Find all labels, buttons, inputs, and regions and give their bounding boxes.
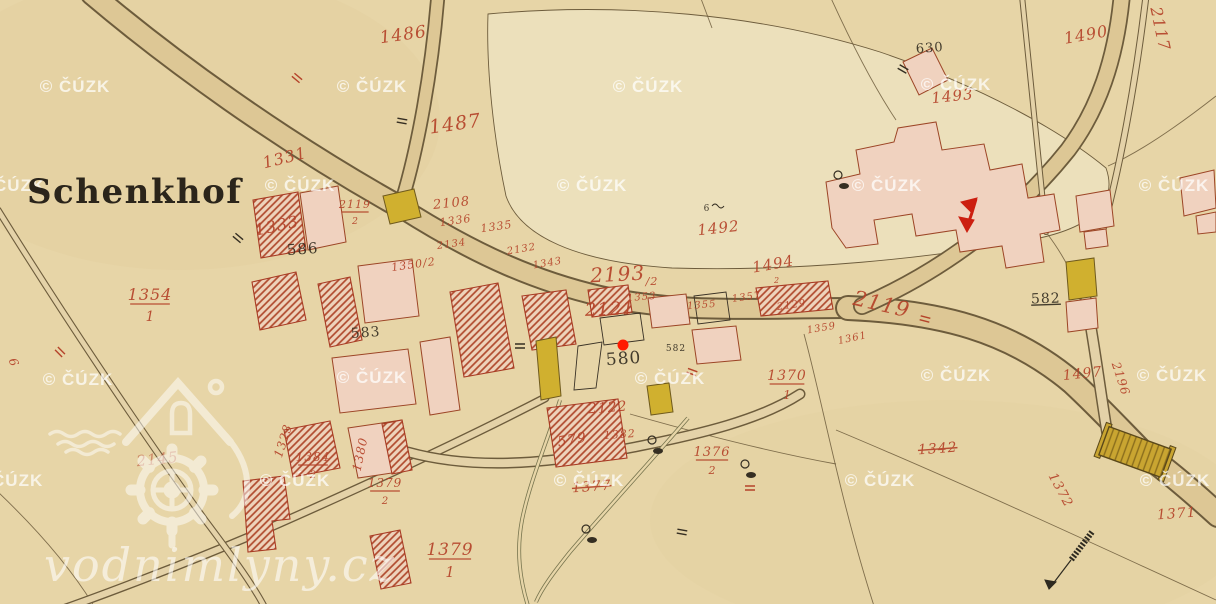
parcel-label-2121: 2121 (584, 298, 636, 321)
cuzk-watermark: © ČÚZK (1137, 366, 1207, 385)
cuzk-watermark: © ČÚZK (337, 77, 407, 96)
parcel-label-583: 583 (350, 324, 381, 342)
building (1084, 229, 1108, 249)
parcel-label-/2: /2 (645, 275, 659, 288)
parcel-label-582: 582 (1031, 290, 1061, 307)
svg-text:1379: 1379 (426, 540, 473, 560)
svg-text:2: 2 (707, 464, 715, 477)
svg-text:2119: 2119 (338, 198, 371, 211)
brand-watermark-text: vodnimlyny.cz (44, 538, 396, 592)
building (1076, 190, 1114, 232)
cuzk-watermark: © ČÚZK (43, 370, 113, 389)
svg-text:2: 2 (381, 496, 388, 507)
cuzk-watermark: © ČÚZK (845, 471, 915, 490)
svg-text:1379: 1379 (368, 476, 403, 490)
cuzk-watermark: © ČÚZK (40, 77, 110, 96)
svg-text:1: 1 (445, 565, 454, 581)
yellow-building (383, 189, 421, 224)
parcel-label-1371: 1371 (1156, 505, 1197, 524)
cuzk-watermark: © ČÚZK (921, 366, 991, 385)
cuzk-watermark: © ČÚZK (0, 471, 43, 490)
parcel-label-2193: 2193 (589, 261, 646, 288)
svg-text:2: 2 (351, 216, 358, 227)
yellow-building (1066, 258, 1097, 300)
cuzk-watermark: © ČÚZK (1140, 471, 1210, 490)
parcel-label-2122: 2122 (586, 399, 628, 418)
svg-text:1370: 1370 (767, 368, 807, 384)
hatched-building (252, 272, 306, 330)
svg-text:1384: 1384 (296, 450, 331, 464)
cadastral-map-canvas[interactable]: 148614871331133321081336133521341350/221… (0, 0, 1216, 604)
cuzk-watermark: © ČÚZK (260, 471, 330, 490)
building (692, 326, 741, 364)
cuzk-watermark: © ČÚZK (613, 77, 683, 96)
cuzk-watermark: © ČÚZK (852, 176, 922, 195)
cuzk-watermark: © ČÚZK (265, 176, 335, 195)
yellow-building (536, 337, 561, 400)
cuzk-watermark: © ČÚZK (554, 471, 624, 490)
parcel-label-1342: 1342 (917, 440, 958, 459)
cuzk-watermark: © ČÚZK (557, 176, 627, 195)
svg-text:1354: 1354 (128, 285, 173, 304)
svg-text:1376: 1376 (693, 445, 730, 460)
parcel-label-586: 586 (286, 239, 319, 259)
parcel-label-630: 630 (915, 40, 944, 57)
cuzk-watermark: © ČÚZK (1139, 176, 1209, 195)
parcel-label-582: 582 (666, 344, 686, 354)
svg-text:1: 1 (146, 309, 155, 325)
parcel-label-6: 6 (704, 204, 711, 214)
cuzk-watermark: © ČÚZK (921, 75, 991, 94)
parcel-label-1382: 1382 (603, 427, 636, 442)
cuzk-watermark: © ČÚZK (635, 369, 705, 388)
parcel-label-2: 2 (773, 276, 780, 285)
svg-text:1: 1 (783, 388, 791, 402)
building (1066, 298, 1098, 332)
map-viewport[interactable]: 148614871331133321081336133521341350/221… (0, 0, 1216, 604)
building (1196, 212, 1216, 234)
cuzk-watermark: © ČÚZK (337, 368, 407, 387)
parcel-label-580: 580 (605, 348, 642, 370)
poi-marker-dot[interactable] (618, 340, 629, 351)
place-name-label: Schenkhof (27, 172, 243, 212)
